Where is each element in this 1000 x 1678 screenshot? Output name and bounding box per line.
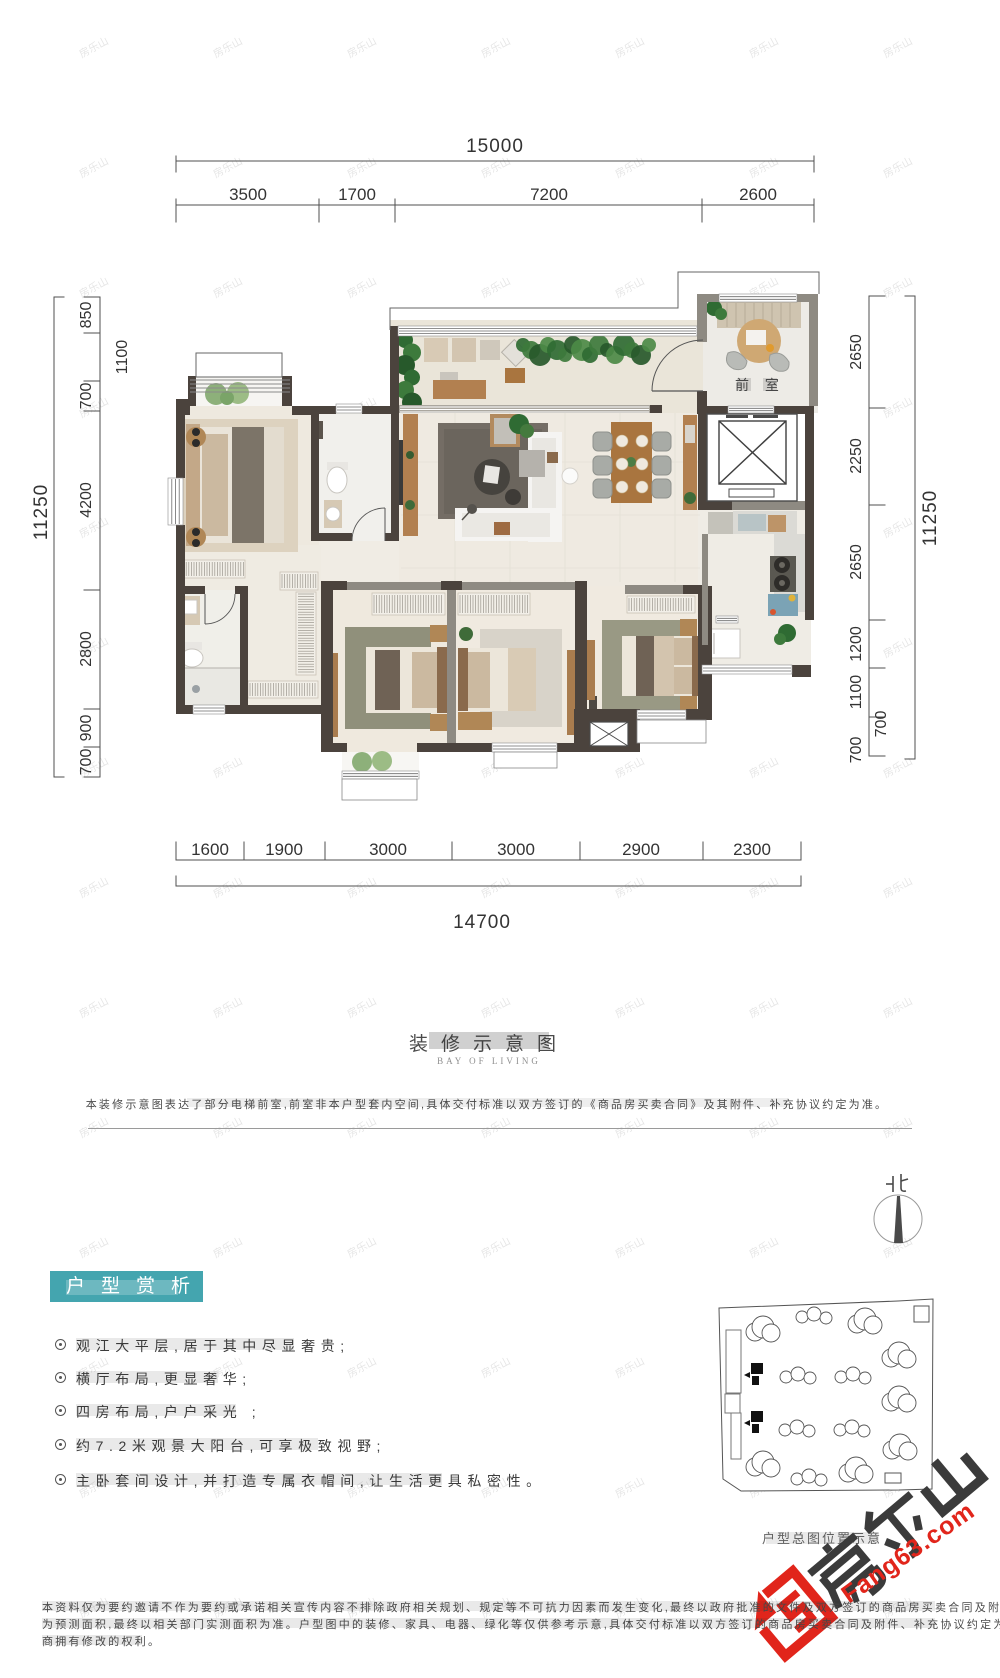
svg-text:11250: 11250 [920,490,941,546]
svg-text:850: 850 [78,302,95,329]
svg-text:1100: 1100 [114,340,131,375]
svg-text:4200: 4200 [78,482,95,518]
svg-text:700: 700 [78,749,95,776]
svg-text:2650: 2650 [848,544,865,580]
svg-text:900: 900 [78,715,95,742]
svg-text:700: 700 [848,737,865,764]
svg-text:7200: 7200 [530,185,568,204]
svg-text:3000: 3000 [497,840,535,859]
svg-text:2800: 2800 [78,631,95,667]
svg-text:700: 700 [873,711,890,738]
svg-text:700: 700 [78,383,95,410]
svg-text:14700: 14700 [453,912,511,933]
svg-text:2600: 2600 [739,185,777,204]
svg-text:2900: 2900 [622,840,660,859]
svg-text:1600: 1600 [191,840,229,859]
svg-text:2650: 2650 [848,334,865,370]
svg-text:3000: 3000 [369,840,407,859]
svg-text:1900: 1900 [265,840,303,859]
svg-text:1100: 1100 [848,675,865,710]
svg-text:2250: 2250 [848,438,865,474]
svg-text:2300: 2300 [733,840,771,859]
svg-text:1200: 1200 [848,626,865,662]
svg-text:11250: 11250 [31,484,52,540]
svg-text:3500: 3500 [229,185,267,204]
svg-text:15000: 15000 [466,136,524,157]
svg-text:1700: 1700 [338,185,376,204]
